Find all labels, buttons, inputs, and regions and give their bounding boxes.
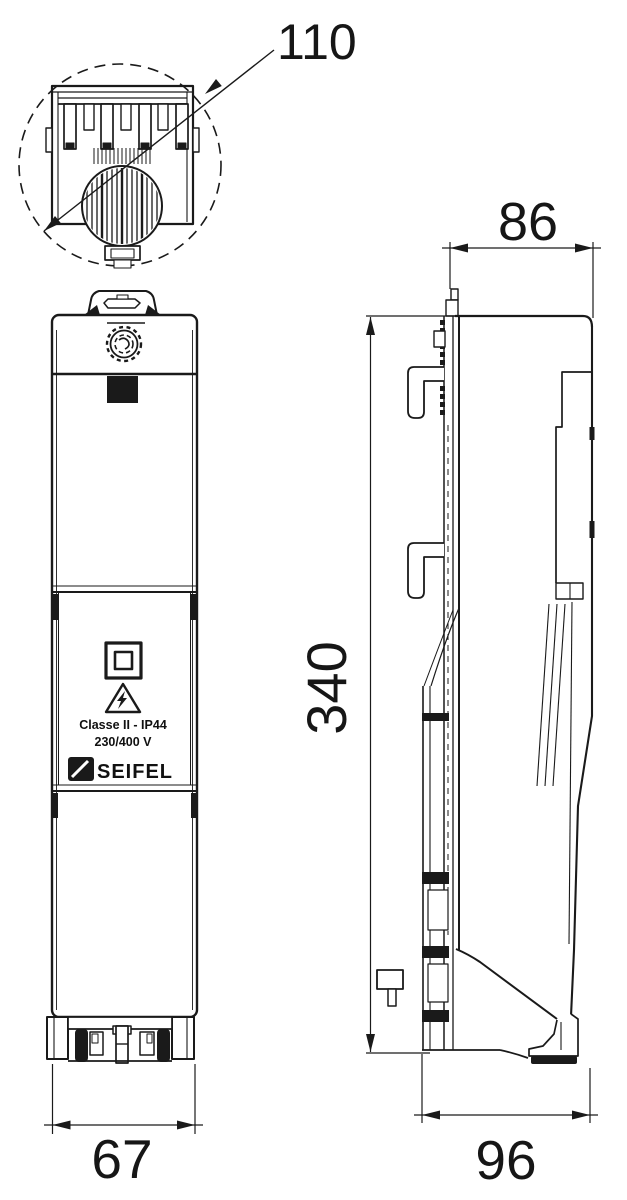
top-view-drawing <box>46 86 199 268</box>
technical-drawing: 110 <box>0 0 627 1200</box>
hanger-tab <box>84 291 161 315</box>
dimension-96 <box>414 1054 598 1123</box>
technical-drawing-page: 110 <box>0 0 627 1200</box>
comb-slats <box>94 148 150 164</box>
window-cutout <box>107 376 138 403</box>
din-hook-lower <box>408 543 444 598</box>
lid-profile <box>455 316 595 1064</box>
class-rating-text: Classe II - IP44 <box>79 718 167 732</box>
dimension-86 <box>442 242 601 318</box>
gland-section <box>47 1017 194 1063</box>
dim-110-label: 110 <box>277 14 357 70</box>
voltage-text: 230/400 V <box>95 735 153 749</box>
dim-110-arrow <box>205 79 222 94</box>
detail-view <box>19 50 274 268</box>
bottom-latch <box>377 970 403 989</box>
terminal-pins <box>64 104 188 149</box>
front-view <box>44 291 203 1134</box>
brand-logo: SEIFEL <box>68 757 173 783</box>
lid-foot <box>529 1014 578 1056</box>
brand-text: SEIFEL <box>97 761 173 783</box>
dim-86-label: 86 <box>498 192 558 252</box>
dimension-340 <box>366 316 460 1053</box>
din-hook-upper <box>408 367 444 418</box>
dim-340-label: 340 <box>295 641 358 734</box>
dim-96-label: 96 <box>475 1129 536 1191</box>
grommet <box>82 166 162 246</box>
mounting-plate <box>377 289 528 1058</box>
enclosure-body <box>52 315 197 1017</box>
dim-67-label: 67 <box>91 1128 152 1190</box>
side-view <box>366 242 601 1123</box>
dimension-67 <box>44 1064 203 1134</box>
